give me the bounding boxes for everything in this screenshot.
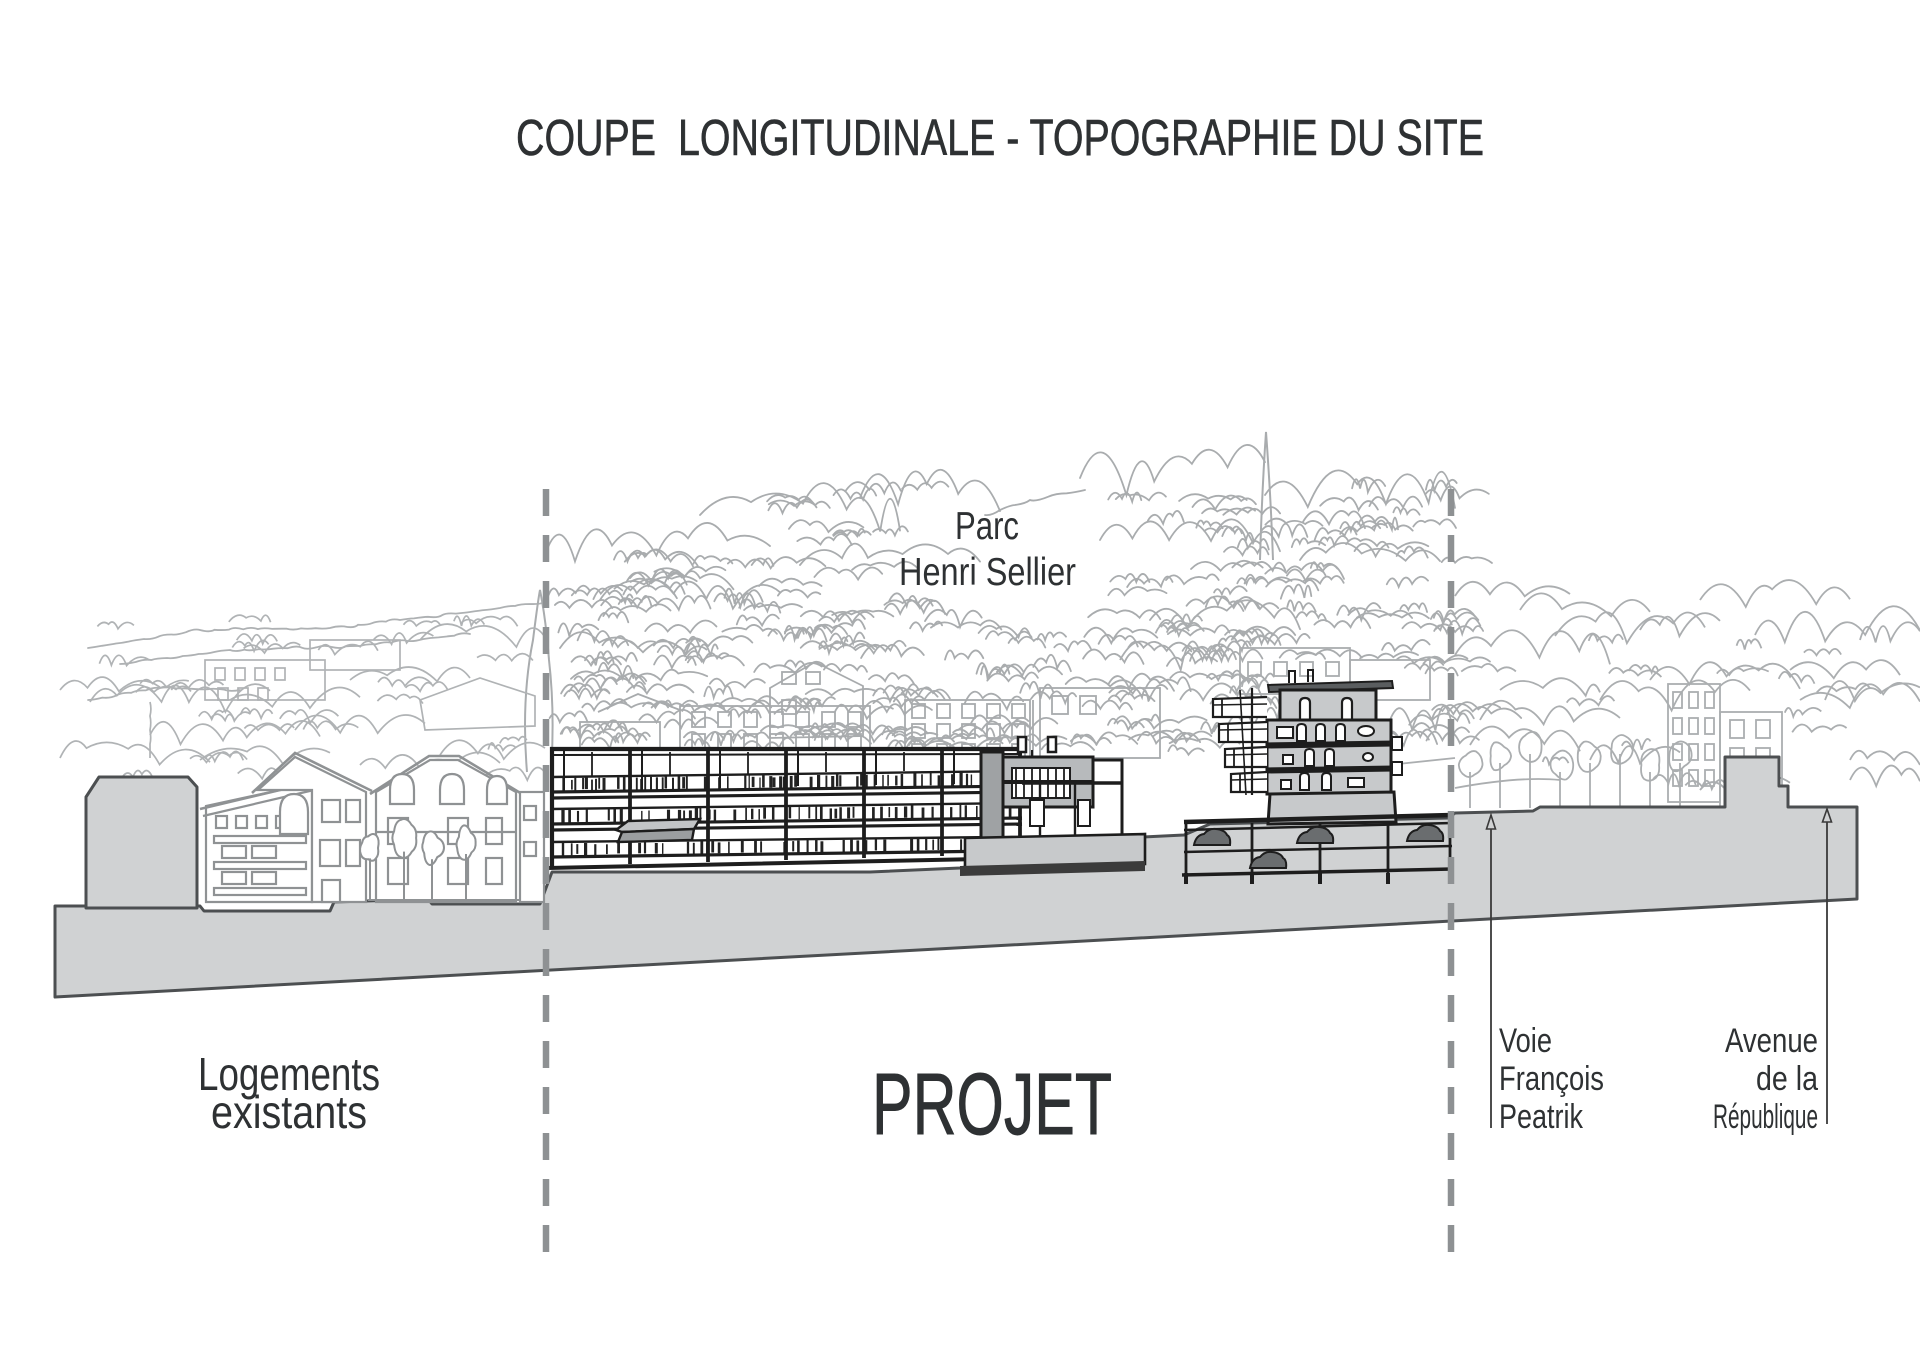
svg-text:Parc: Parc	[955, 505, 1019, 548]
svg-text:PROJET: PROJET	[872, 1056, 1112, 1153]
svg-text:Peatrik: Peatrik	[1499, 1098, 1584, 1136]
svg-text:Henri Sellier: Henri Sellier	[899, 551, 1076, 594]
svg-text:François: François	[1499, 1060, 1604, 1098]
svg-text:République: République	[1713, 1098, 1818, 1136]
svg-text:COUPE LONGITUDINALE - TOPOGRA: COUPE LONGITUDINALE - TOPOGRAPHIE DU SIT…	[516, 109, 1484, 166]
svg-text:existants: existants	[211, 1086, 367, 1138]
svg-text:de la: de la	[1756, 1060, 1818, 1098]
svg-text:Avenue: Avenue	[1725, 1022, 1818, 1060]
svg-text:Voie: Voie	[1499, 1022, 1552, 1060]
